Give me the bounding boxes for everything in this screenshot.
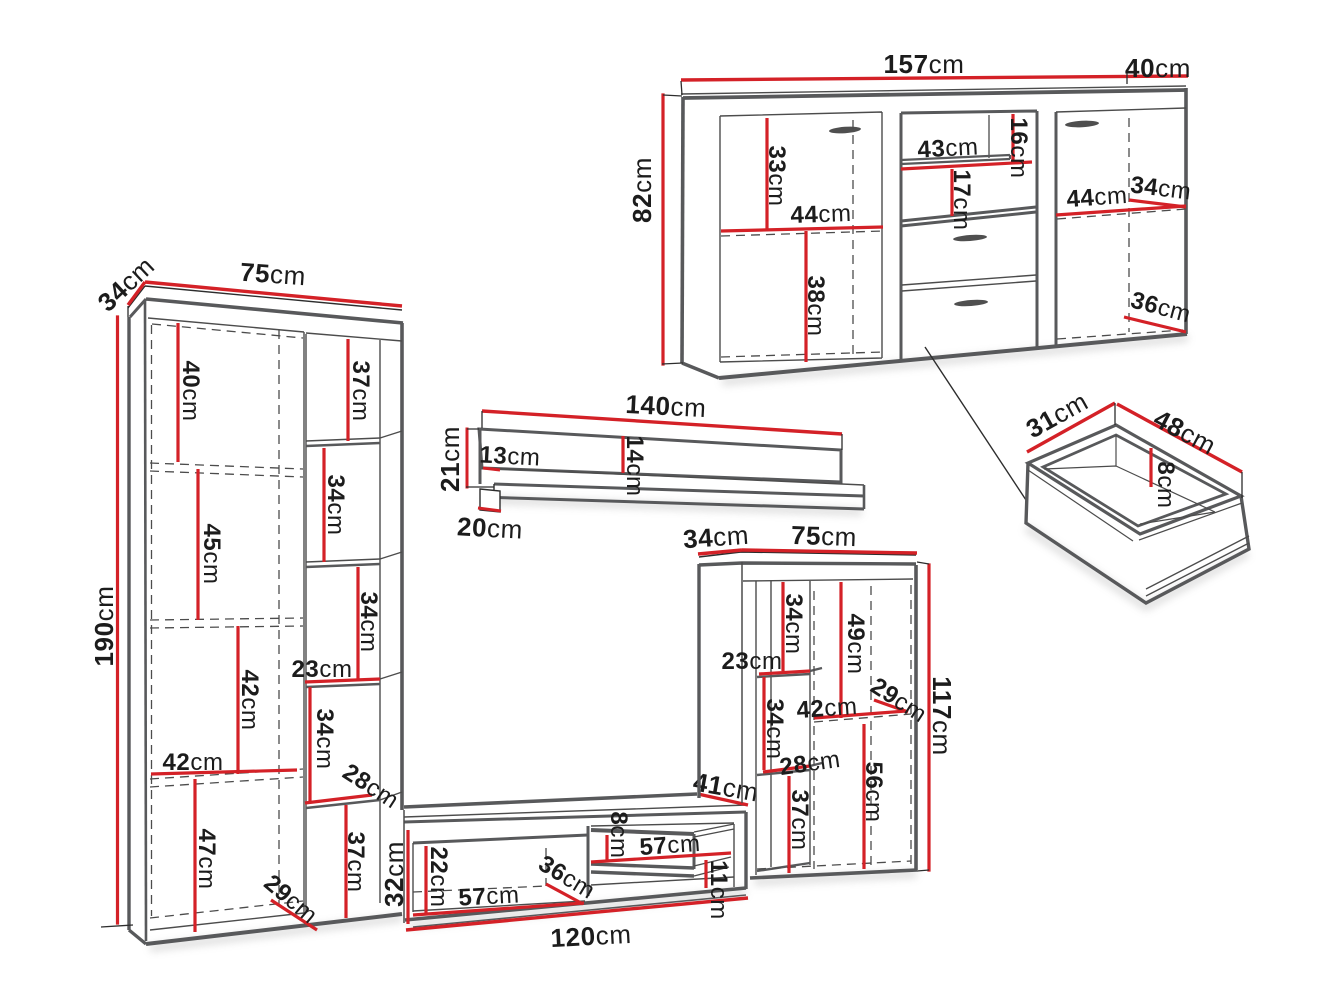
svg-text:21cm: 21cm: [435, 426, 465, 492]
svg-text:57cm: 57cm: [639, 829, 702, 860]
svg-text:120cm: 120cm: [550, 919, 633, 953]
svg-text:32cm: 32cm: [379, 841, 409, 907]
svg-text:56cm: 56cm: [861, 761, 888, 822]
svg-text:37cm: 37cm: [787, 789, 814, 850]
svg-text:117cm: 117cm: [927, 676, 957, 756]
svg-text:34cm: 34cm: [312, 708, 339, 769]
svg-text:34cm: 34cm: [762, 698, 789, 759]
svg-text:34cm: 34cm: [323, 474, 350, 535]
svg-text:82cm: 82cm: [627, 157, 657, 223]
svg-text:23cm: 23cm: [291, 656, 352, 683]
svg-text:140cm: 140cm: [625, 389, 708, 423]
svg-text:17cm: 17cm: [949, 169, 976, 230]
svg-text:37cm: 37cm: [343, 831, 370, 892]
svg-text:11cm: 11cm: [706, 860, 733, 920]
svg-text:157cm: 157cm: [883, 49, 964, 79]
svg-text:45cm: 45cm: [199, 523, 226, 584]
svg-text:37cm: 37cm: [348, 360, 375, 421]
svg-text:38cm: 38cm: [803, 275, 830, 336]
svg-text:42cm: 42cm: [237, 669, 264, 730]
svg-text:75cm: 75cm: [239, 257, 307, 292]
svg-text:8cm: 8cm: [1153, 461, 1180, 508]
svg-text:23cm: 23cm: [721, 648, 782, 675]
svg-text:42cm: 42cm: [162, 749, 223, 776]
svg-text:33cm: 33cm: [764, 145, 791, 206]
svg-text:34cm: 34cm: [356, 591, 383, 652]
svg-text:43cm: 43cm: [917, 133, 979, 163]
svg-text:49cm: 49cm: [843, 613, 870, 674]
svg-text:16cm: 16cm: [1006, 117, 1033, 178]
svg-text:75cm: 75cm: [791, 520, 858, 552]
svg-text:34cm: 34cm: [781, 593, 808, 654]
svg-text:20cm: 20cm: [456, 511, 523, 544]
svg-text:22cm: 22cm: [426, 846, 453, 907]
svg-text:40cm: 40cm: [1125, 53, 1191, 83]
svg-text:57cm: 57cm: [458, 881, 520, 911]
svg-text:44cm: 44cm: [1066, 181, 1129, 212]
svg-text:14cm: 14cm: [622, 435, 649, 496]
svg-text:8cm: 8cm: [606, 811, 633, 858]
svg-text:13cm: 13cm: [479, 441, 541, 471]
svg-text:47cm: 47cm: [194, 828, 221, 889]
svg-text:42cm: 42cm: [796, 692, 859, 723]
svg-text:44cm: 44cm: [790, 199, 852, 228]
svg-text:190cm: 190cm: [89, 585, 119, 666]
svg-text:34cm: 34cm: [682, 520, 750, 555]
svg-text:40cm: 40cm: [178, 360, 205, 421]
